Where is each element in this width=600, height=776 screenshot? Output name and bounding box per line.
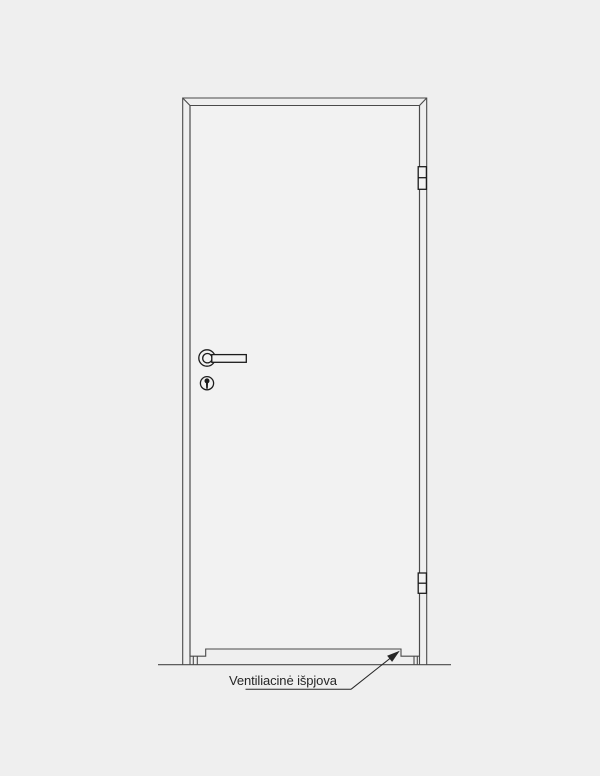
vent-cutout-label: Ventiliacinė išpjova — [229, 673, 338, 688]
hinge-top — [418, 167, 426, 190]
keyhole-slot — [206, 382, 208, 389]
leader-annotation: Ventiliacinė išpjova — [229, 651, 400, 690]
frame-miter-right — [420, 98, 427, 106]
door-leaf — [190, 106, 420, 657]
handle-rosette-inner — [203, 354, 212, 363]
ventilation-cutout — [206, 649, 401, 656]
drawing-canvas: Ventiliacinė išpjova — [0, 0, 600, 776]
handle-lever — [212, 355, 247, 363]
leader-arrowhead-icon — [387, 651, 400, 662]
keyhole — [200, 377, 213, 390]
door-technical-drawing: Ventiliacinė išpjova — [0, 0, 600, 776]
frame-miter-left — [183, 98, 190, 106]
hinge-bottom — [418, 573, 426, 593]
